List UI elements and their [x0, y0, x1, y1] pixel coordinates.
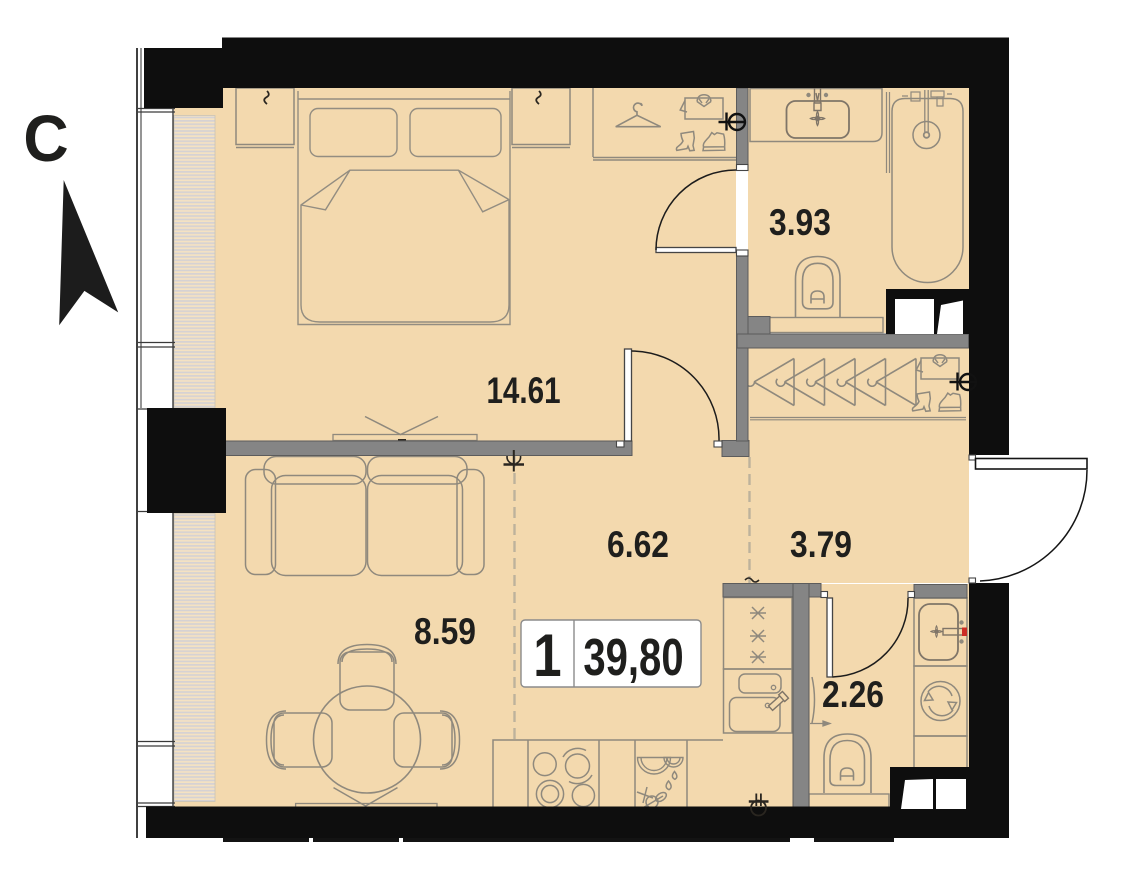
- svg-text:3.79: 3.79: [790, 525, 852, 566]
- svg-text:2.26: 2.26: [822, 675, 884, 716]
- svg-text:6.62: 6.62: [607, 525, 669, 566]
- svg-text:C: C: [23, 102, 68, 176]
- svg-text:1: 1: [533, 622, 561, 689]
- svg-text:14.61: 14.61: [486, 371, 560, 412]
- svg-text:39,80: 39,80: [583, 628, 683, 686]
- svg-text:8.59: 8.59: [414, 612, 476, 653]
- svg-text:3.93: 3.93: [769, 203, 831, 244]
